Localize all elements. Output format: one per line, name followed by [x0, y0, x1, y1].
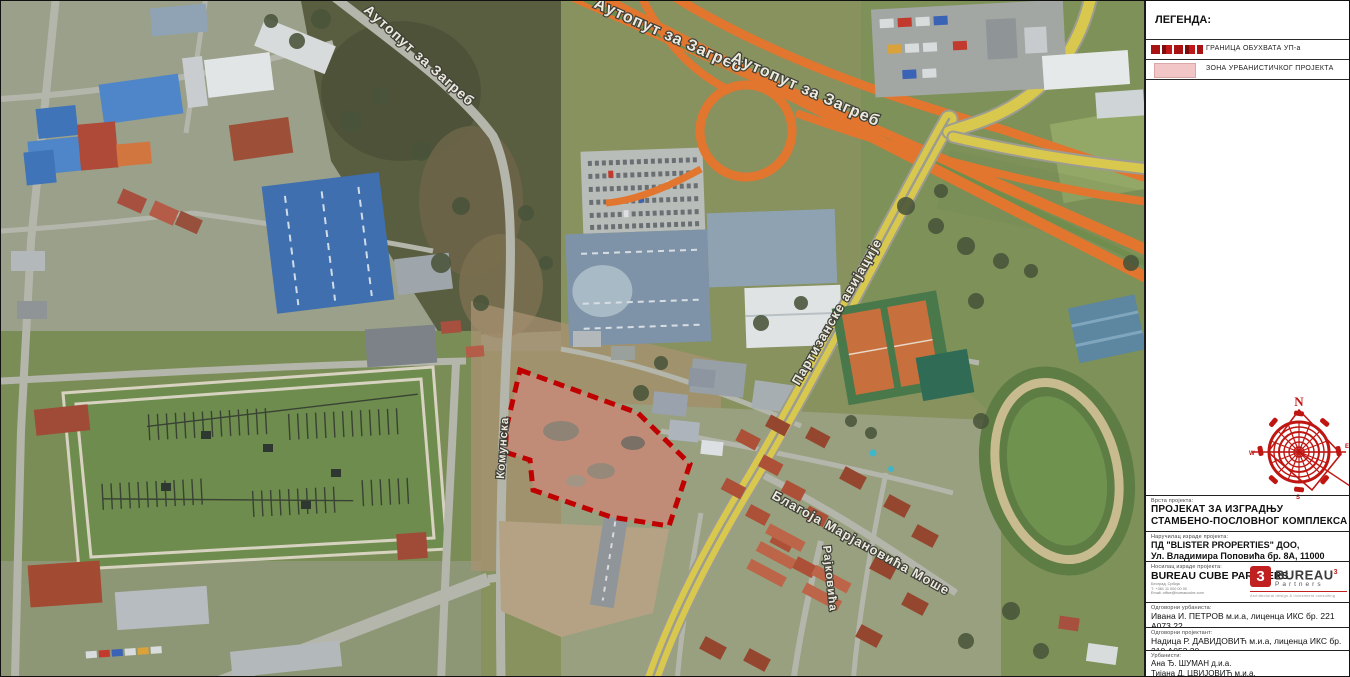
client-line1: ПД "BLISTER PROPERTIES" ДОО, — [1151, 540, 1350, 551]
project-title-line2: СТАМБЕНО-ПОСЛОВНОГ КОМПЛЕКСА — [1151, 516, 1350, 528]
titleblock-row-designer: Одговорни пројектант: Надица Р. ДАВИДОВИ… — [1146, 627, 1350, 650]
team-member: Тијана Д. ЦВИЈОВИЋ м.и.а. — [1151, 669, 1350, 677]
logo-superscript: 3 — [1334, 569, 1338, 576]
titleblock-row-author: Носилац израде пројекта: BUREAU CUBE PAR… — [1146, 561, 1350, 602]
titleblock-row-team: Урбанисти: Ана Ђ. ШУМАН д.и.а. Тијана Д.… — [1146, 650, 1350, 677]
logo-rule — [1250, 591, 1347, 592]
divider — [1146, 79, 1350, 80]
truck-lot — [871, 1, 1067, 98]
compass-west-label: W — [1249, 451, 1255, 457]
compass-rose: N W E S — [1246, 394, 1350, 500]
boundary-line-symbol — [1151, 45, 1203, 54]
legend-item-label: ГРАНИЦА ОБУХВАТА УП-а — [1206, 45, 1301, 52]
plan-sheet: Аутопут за Загреб Аутопут за Загреб Ауто… — [0, 0, 1350, 677]
logo-name: BUREAU — [1275, 567, 1334, 582]
legend-item-label: ЗОНА УРБАНИСТИЧКОГ ПРОЈЕКТА — [1206, 65, 1334, 72]
sports-hall — [916, 349, 975, 401]
substation — [63, 367, 447, 569]
logo-subname: Partners — [1275, 581, 1338, 589]
designer-value: Надица Р. ДАВИДОВИЋ м.и.а, лиценца ИКС б… — [1151, 636, 1350, 650]
compass-east-label: E — [1345, 444, 1349, 450]
map-canvas: Аутопут за Загреб Аутопут за Загреб Ауто… — [1, 1, 1144, 677]
bureau-logo: 3 BUREAU3 Partners Architectural design … — [1250, 566, 1347, 598]
logo-mark: 3 — [1250, 566, 1271, 587]
titleblock-row-urbanist: Одговорни урбаниста: Ивана И. ПЕТРОВ м.и… — [1146, 602, 1350, 627]
titleblock-row-project-type: Врста пројекта: ПРОЈЕКАТ ЗА ИЗГРАДЊУ СТА… — [1146, 495, 1350, 531]
title-block: Врста пројекта: ПРОЈЕКАТ ЗА ИЗГРАДЊУ СТА… — [1146, 495, 1350, 677]
titleblock-row-client: Наручилац израде пројекта: ПД "BLISTER P… — [1146, 531, 1350, 561]
client-line2: Ул. Владимира Поповића бр. 8А, 11000 Бео… — [1151, 551, 1350, 561]
logo-tagline: Architectural design & investment consul… — [1250, 593, 1347, 598]
legend-title: ЛЕГЕНДА: — [1155, 14, 1211, 26]
legend-item-boundary: ГРАНИЦА ОБУХВАТА УП-а — [1146, 40, 1350, 59]
satellite-map: Аутопут за Загреб Аутопут за Загреб Ауто… — [1, 1, 1144, 677]
team-member: Ана Ђ. ШУМАН д.и.а. — [1151, 659, 1350, 669]
legend-item-zone: ЗОНА УРБАНИСТИЧКОГ ПРОЈЕКТА — [1146, 60, 1350, 79]
compass-north-label: N — [1294, 394, 1304, 409]
urbanist-value: Ивана И. ПЕТРОВ м.и.а, лиценца ИКС бр. 2… — [1151, 611, 1350, 627]
title-panel: ЛЕГЕНДА: ГРАНИЦА ОБУХВАТА УП-а ЗОНА УРБА… — [1144, 1, 1350, 677]
zone-fill-symbol — [1154, 63, 1196, 78]
project-title-line1: ПРОЈЕКАТ ЗА ИЗГРАДЊУ — [1151, 504, 1350, 516]
